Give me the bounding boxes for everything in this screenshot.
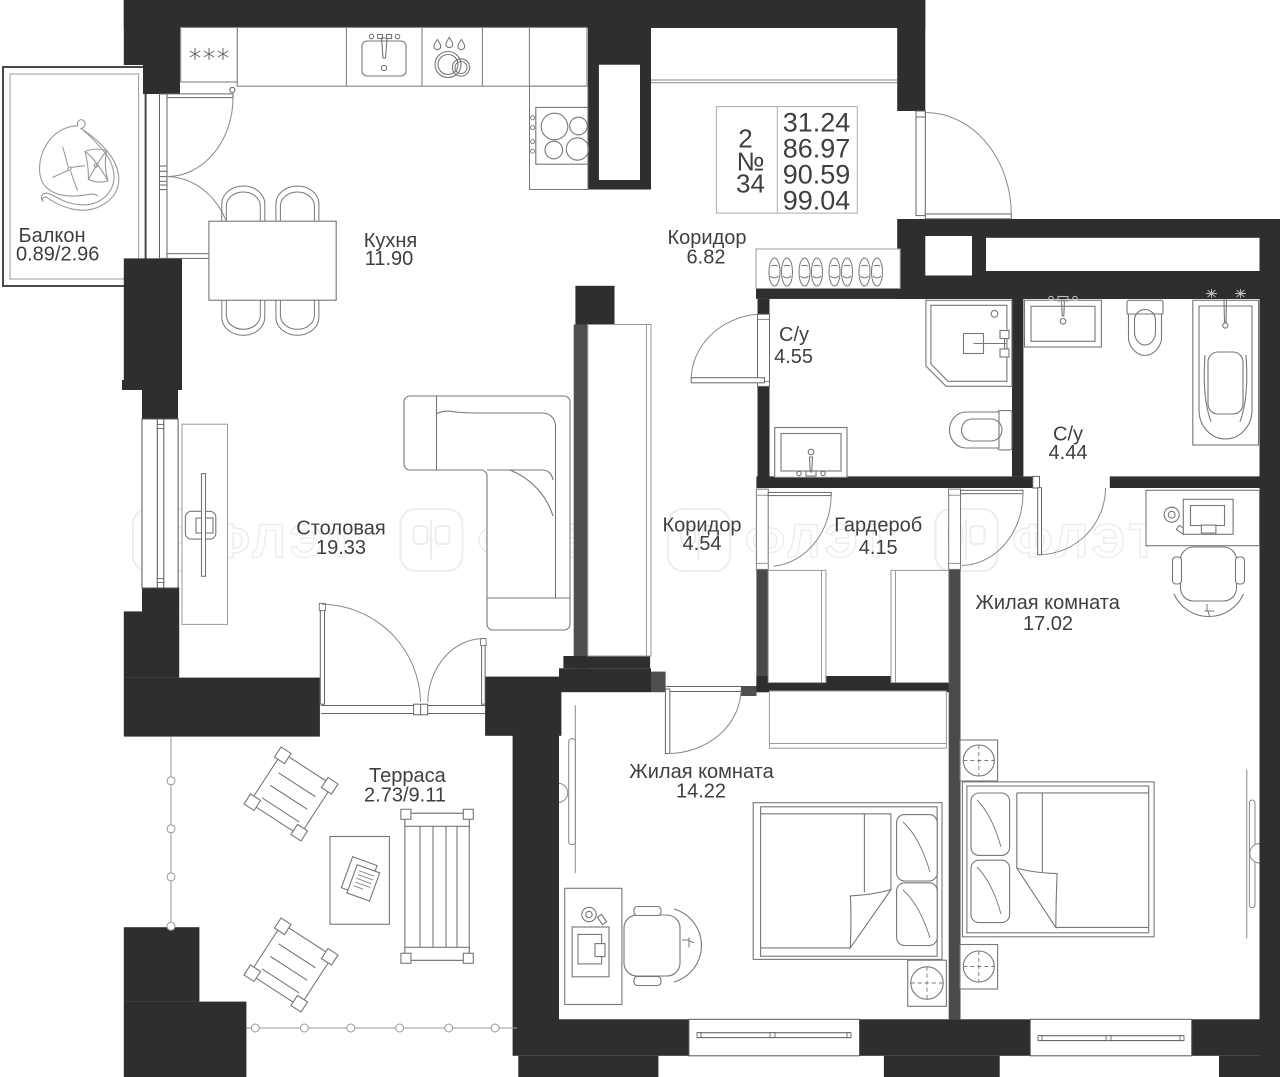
svg-text:19.33: 19.33 — [316, 537, 366, 559]
svg-text:ФЛЭТ: ФЛЭТ — [1013, 514, 1162, 567]
svg-text:6.82: 6.82 — [687, 247, 726, 269]
svg-text:99.04: 99.04 — [783, 186, 851, 216]
svg-text:Гардероб: Гардероб — [834, 515, 922, 537]
svg-text:34: 34 — [736, 169, 765, 199]
svg-text:С/у: С/у — [779, 324, 809, 346]
svg-text:11.90: 11.90 — [365, 248, 414, 270]
svg-text:4.55: 4.55 — [774, 346, 813, 368]
svg-text:4.15: 4.15 — [859, 537, 898, 559]
svg-text:17.02: 17.02 — [1023, 613, 1073, 635]
svg-text:0.89/2.96: 0.89/2.96 — [16, 244, 99, 266]
svg-text:2.73/9.11: 2.73/9.11 — [364, 785, 446, 807]
svg-text:4.44: 4.44 — [1049, 442, 1088, 464]
svg-text:Жилая комната: Жилая комната — [975, 592, 1120, 614]
svg-text:14.22: 14.22 — [676, 781, 726, 803]
svg-text:4.54: 4.54 — [683, 533, 722, 555]
